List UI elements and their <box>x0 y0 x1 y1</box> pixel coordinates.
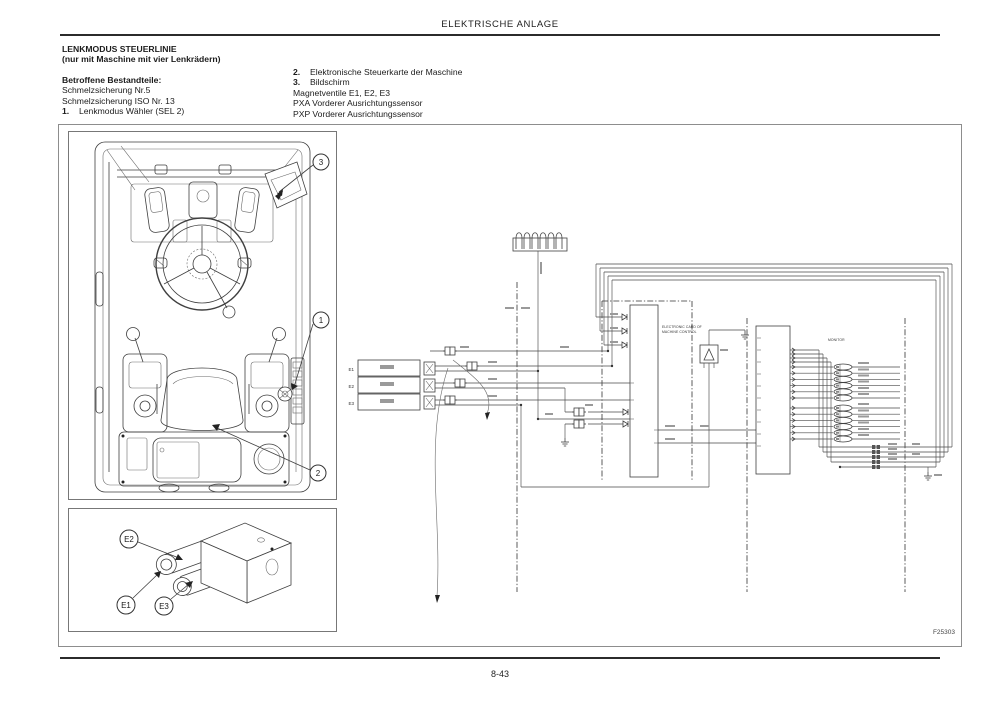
valve-callouts: E2 E1 E3 <box>117 530 193 615</box>
cab-top-view-drawing: 3 1 2 <box>69 132 336 499</box>
cab-illustration-panel: 3 1 2 <box>68 131 337 500</box>
valve-illustration-panel: E2 E1 E3 <box>68 508 337 632</box>
solenoid-label-e2: E2 <box>348 384 354 389</box>
item-number: 2. <box>293 67 310 77</box>
card-label-line1: ELECTRONIC CARD OF <box>662 325 702 329</box>
figure-code: F25303 <box>855 629 955 636</box>
item-label: Elektronische Steuerkarte der Maschine <box>310 67 462 77</box>
inline-connectors <box>443 331 932 480</box>
component-item: Schmelzsicherung Nr.5 <box>62 85 221 95</box>
header-rule <box>60 34 940 36</box>
intro-right-column: 2. Elektronische Steuerkarte der Maschin… <box>293 67 462 119</box>
card-label-line2: MACHINE CONTROL <box>662 330 697 334</box>
solenoid-label-e3: E3 <box>348 401 354 406</box>
callout-e2: E2 <box>124 535 134 544</box>
item-label: Bildschirm <box>310 77 350 87</box>
page-number: 8-43 <box>0 669 1000 679</box>
solenoid-label-e1: E1 <box>348 367 354 372</box>
item-number: 1. <box>62 106 79 116</box>
section-subtitle: (nur mit Maschine mit vier Lenkrädern) <box>62 54 221 64</box>
component-item: PXA Vorderer Ausrichtungssensor <box>293 98 462 108</box>
sheet-reference-arrows <box>435 360 490 603</box>
item-label: Lenkmodus Wähler (SEL 2) <box>79 106 184 116</box>
intro-left-column: LENKMODUS STEUERLINIE (nur mit Maschine … <box>62 44 221 116</box>
monitor-label: MONITOR <box>828 338 845 342</box>
component-item: Schmelzsicherung ISO Nr. 13 <box>62 96 221 106</box>
alignment-sensor-symbol <box>700 345 718 368</box>
component-item: Magnetventile E1, E2, E3 <box>293 88 462 98</box>
callout-e3: E3 <box>159 602 169 611</box>
numbered-item-3: 3. Bildschirm <box>293 77 462 87</box>
item-number: 3. <box>293 77 310 87</box>
valve-block-drawing: E2 E1 E3 <box>69 509 336 631</box>
callout-2: 2 <box>316 469 321 478</box>
numbered-item-2: 2. Elektronische Steuerkarte der Maschin… <box>293 67 462 77</box>
monitor-oval-connectors <box>834 364 852 442</box>
fuse-block <box>513 233 567 419</box>
numbered-item-1: 1. Lenkmodus Wähler (SEL 2) <box>62 106 221 116</box>
footer-rule <box>60 657 940 659</box>
callout-3: 3 <box>319 158 324 167</box>
components-heading: Betroffene Bestandteile: <box>62 75 221 85</box>
callout-e1: E1 <box>121 601 131 610</box>
page-header-title: ELEKTRISCHE ANLAGE <box>0 19 1000 30</box>
component-item: PXP Vorderer Ausrichtungssensor <box>293 109 462 119</box>
section-title: LENKMODUS STEUERLINIE <box>62 44 221 54</box>
electronic-card: ELECTRONIC CARD OF MACHINE CONTROL <box>622 305 702 477</box>
callout-1: 1 <box>319 316 324 325</box>
